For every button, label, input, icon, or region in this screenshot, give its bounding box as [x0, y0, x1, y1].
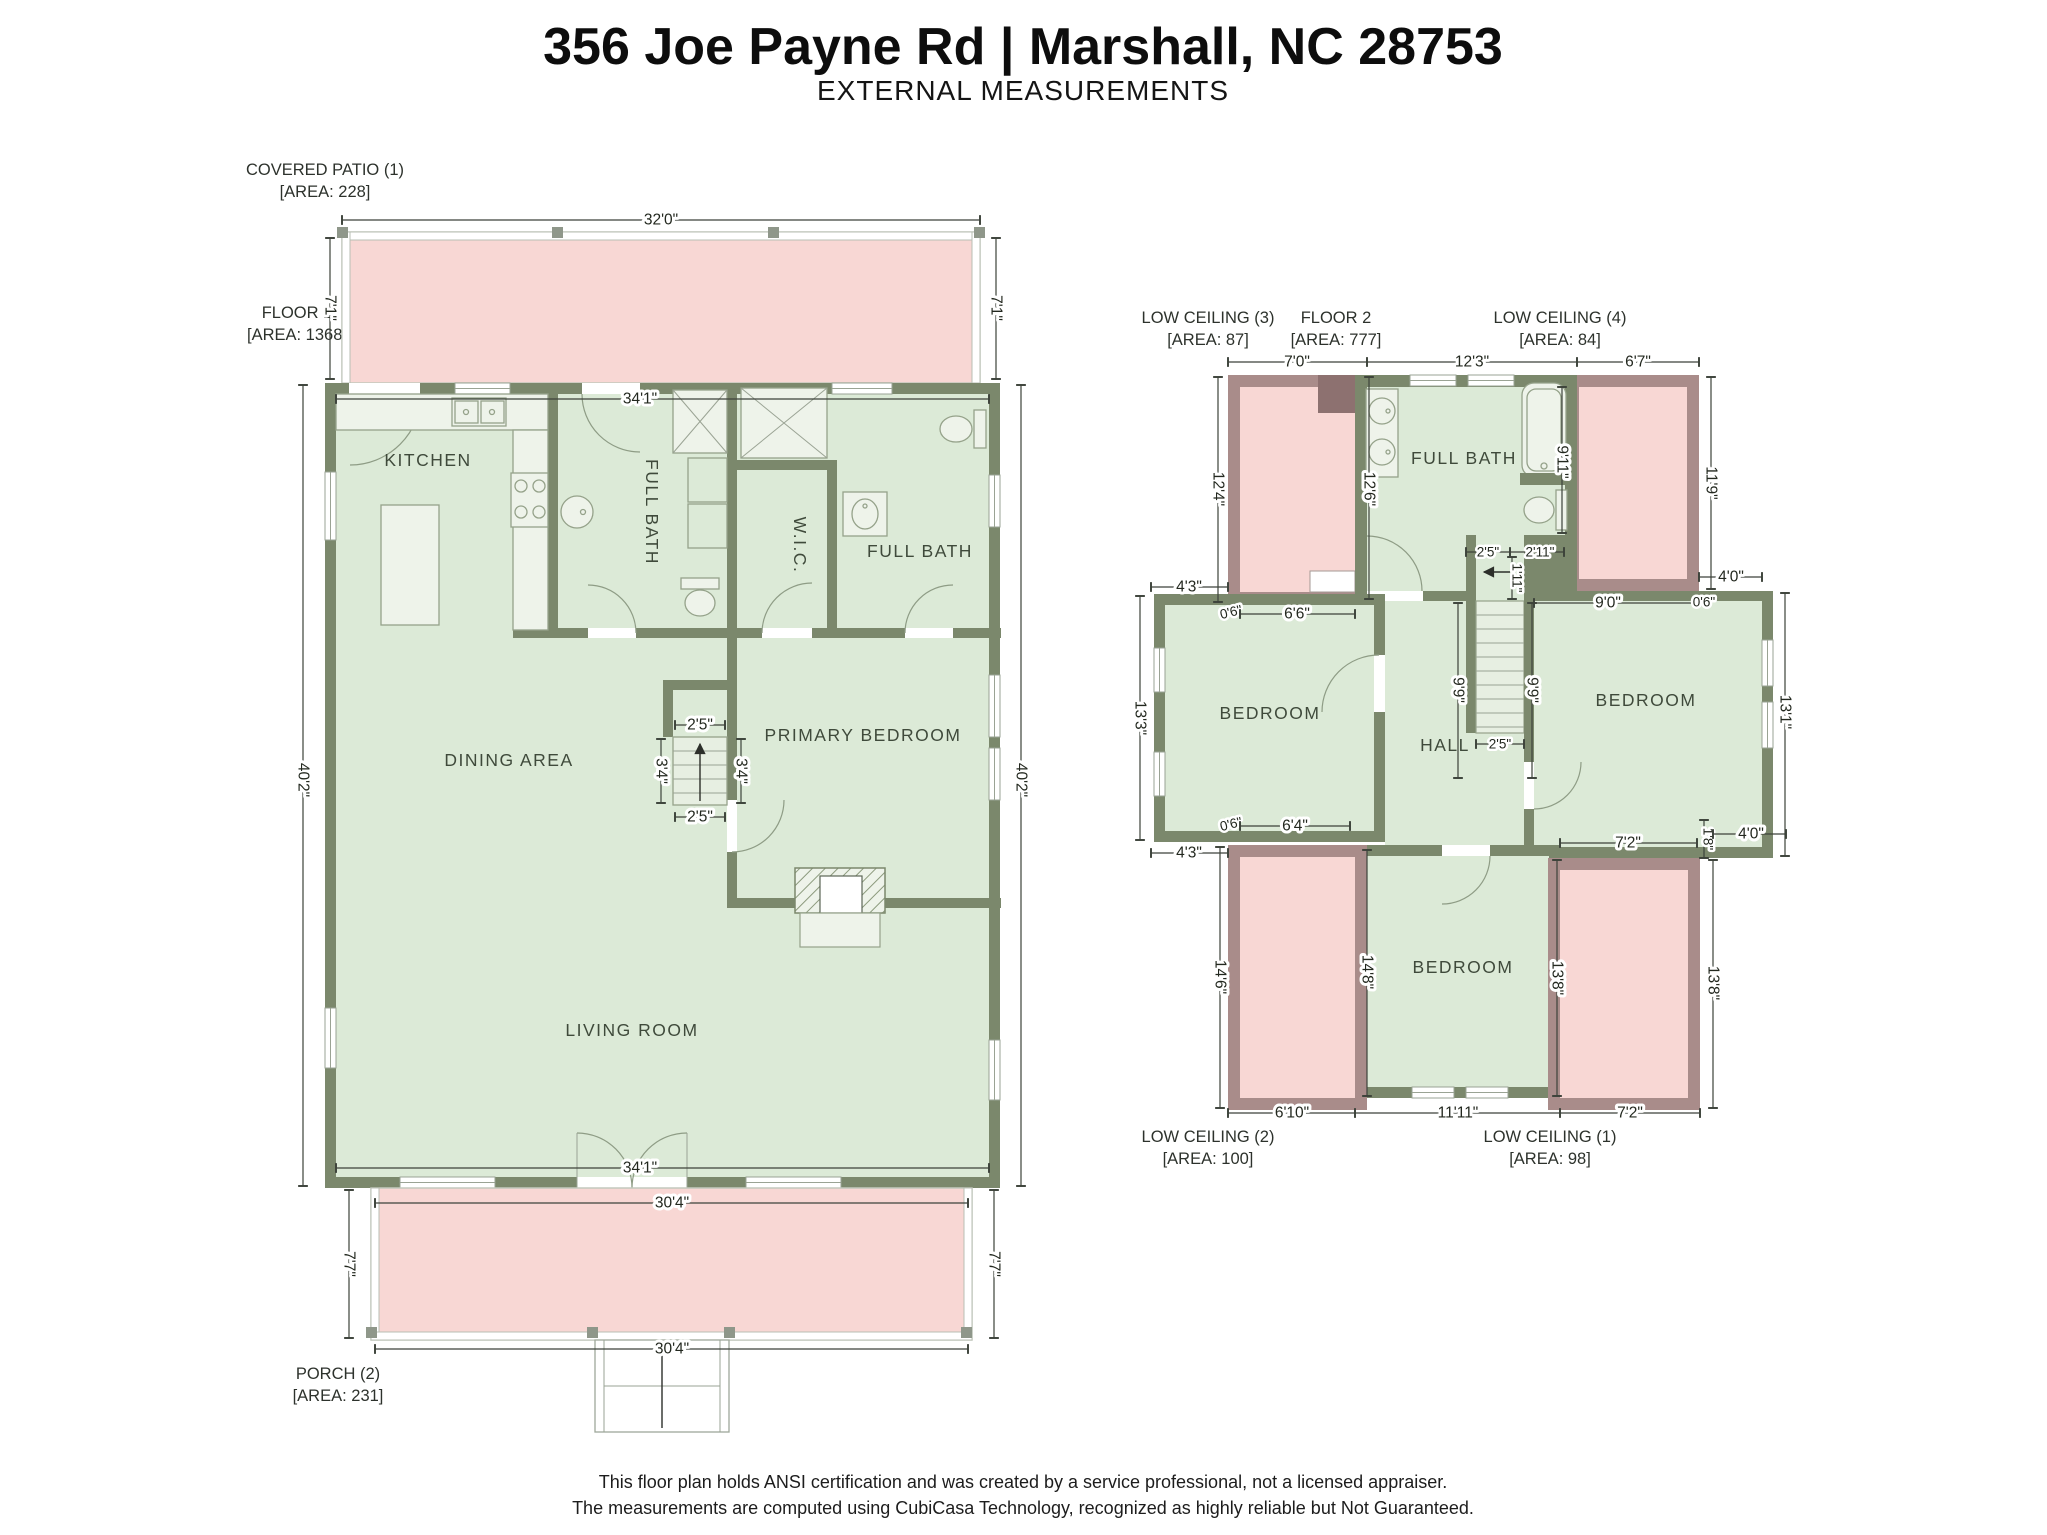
floor2-bedroom-left: BEDROOM: [1154, 594, 1385, 842]
page-subtitle: EXTERNAL MEASUREMENTS: [817, 75, 1229, 106]
svg-text:6'6": 6'6": [1284, 606, 1310, 623]
wall-segment: [663, 690, 673, 737]
room-label-wic: W.I.C.: [790, 517, 810, 574]
wall-segment: [727, 383, 737, 638]
low-ceiling-3-zone: [1228, 375, 1367, 604]
porch-area: [AREA: 231]: [293, 1387, 384, 1405]
page-title: 356 Joe Payne Rd | Marshall, NC 28753: [543, 18, 1503, 76]
covered-patio-area: [337, 227, 985, 383]
floor2-hall: HALL: [1385, 572, 1524, 845]
room-label-full-bath-primary: FULL BATH: [867, 541, 973, 561]
svg-text:1'11": 1'11": [1510, 564, 1525, 593]
footer-line-1: This floor plan holds ANSI certification…: [599, 1472, 1447, 1492]
svg-text:32'0": 32'0": [644, 212, 678, 229]
low-ceiling-1-area: [AREA: 98]: [1509, 1150, 1591, 1168]
room-label-full-bath: FULL BATH: [1411, 448, 1517, 468]
low-ceiling-3-area: [AREA: 87]: [1167, 331, 1249, 349]
svg-text:7'1": 7'1": [322, 295, 339, 321]
floor1-area: [AREA: 1368]: [247, 326, 347, 344]
floor1-plan: COVERED PATIO (1) [AREA: 228] FLOOR 1 [A…: [246, 161, 1030, 1432]
svg-text:7'7": 7'7": [986, 1251, 1003, 1277]
svg-text:2'11": 2'11": [1526, 545, 1555, 560]
svg-text:14'8": 14'8": [1359, 955, 1376, 989]
low-ceiling-1-zone: [1548, 858, 1700, 1110]
svg-text:34'1": 34'1": [623, 1160, 657, 1177]
svg-text:40'2": 40'2": [295, 763, 312, 797]
wall-segment: [663, 680, 737, 690]
room-label-dining: DINING AREA: [444, 750, 573, 770]
room-label-bedroom: BEDROOM: [1220, 703, 1321, 723]
svg-text:2'5": 2'5": [1489, 737, 1512, 752]
wall-segment: [727, 852, 737, 898]
svg-text:2'5": 2'5": [1477, 545, 1500, 560]
svg-text:13'1": 13'1": [1777, 695, 1794, 729]
low-ceiling-2-label: LOW CEILING (2): [1142, 1128, 1275, 1146]
svg-text:4'3": 4'3": [1176, 579, 1202, 596]
svg-text:40'2": 40'2": [1013, 763, 1030, 797]
low-ceiling-4-zone: [1567, 375, 1699, 591]
svg-text:1'8": 1'8": [1701, 828, 1716, 851]
svg-text:11'9": 11'9": [1703, 466, 1720, 499]
svg-text:2'5": 2'5": [687, 809, 713, 826]
porch-label: PORCH (2): [296, 1365, 380, 1383]
low-ceiling-2-zone: [1228, 845, 1367, 1110]
svg-text:13'8": 13'8": [1705, 966, 1722, 1000]
staircase: [673, 737, 727, 805]
room-label-kitchen: KITCHEN: [384, 450, 471, 470]
low-ceiling-2-area: [AREA: 100]: [1163, 1150, 1254, 1168]
wall-segment: [737, 460, 837, 470]
svg-text:4'0": 4'0": [1738, 826, 1764, 843]
low-ceiling-4-area: [AREA: 84]: [1519, 331, 1601, 349]
svg-text:7'1": 7'1": [988, 295, 1005, 321]
svg-text:2'5": 2'5": [687, 717, 713, 734]
svg-text:4'0": 4'0": [1718, 569, 1744, 586]
svg-text:0'6": 0'6": [1693, 595, 1716, 610]
svg-text:12'6": 12'6": [1361, 472, 1378, 506]
low-ceiling-3-label: LOW CEILING (3): [1142, 309, 1275, 327]
svg-text:6'4": 6'4": [1282, 818, 1308, 835]
wall-segment: [548, 383, 558, 638]
svg-text:3'4": 3'4": [653, 758, 670, 784]
low-ceiling-4-label: LOW CEILING (4): [1494, 309, 1627, 327]
svg-text:9'11": 9'11": [1554, 445, 1571, 478]
svg-text:30'4": 30'4": [655, 1195, 689, 1212]
floor2-bedroom-bottom: BEDROOM: [1355, 845, 1560, 1098]
floor2-full-bath: FULL BATH: [1355, 375, 1577, 601]
svg-text:6'7": 6'7": [1625, 354, 1651, 371]
svg-text:11'11": 11'11": [1438, 1105, 1479, 1122]
room-label-hall: HALL: [1420, 735, 1470, 755]
wall-segment: [827, 460, 837, 638]
floor-plan-canvas: 356 Joe Payne Rd | Marshall, NC 28753 EX…: [0, 0, 2047, 1535]
svg-text:9'9": 9'9": [1450, 677, 1467, 703]
svg-text:6'10": 6'10": [1275, 1105, 1309, 1122]
floor-plan-page: 356 Joe Payne Rd | Marshall, NC 28753 EX…: [0, 0, 2047, 1535]
floor2-plan: LOW CEILING (3) [AREA: 87] FLOOR 2 [AREA…: [1132, 309, 1794, 1168]
svg-text:14'6": 14'6": [1212, 960, 1229, 994]
svg-text:7'7": 7'7": [341, 1251, 358, 1277]
low-ceiling-1-label: LOW CEILING (1): [1484, 1128, 1617, 1146]
covered-patio-label: COVERED PATIO (1): [246, 161, 404, 179]
svg-text:4'3": 4'3": [1176, 845, 1202, 862]
svg-text:7'2": 7'2": [1617, 1105, 1643, 1122]
svg-text:13'3": 13'3": [1132, 701, 1149, 735]
svg-text:12'4": 12'4": [1210, 472, 1227, 506]
svg-text:30'4": 30'4": [655, 1341, 689, 1358]
svg-text:12'3": 12'3": [1455, 354, 1489, 371]
svg-text:9'0": 9'0": [1595, 595, 1621, 612]
fireplace-icon: [795, 868, 885, 947]
floor2-label: FLOOR 2: [1301, 309, 1372, 327]
footer-line-2: The measurements are computed using Cubi…: [572, 1498, 1474, 1518]
room-label-full-bath-left: FULL BATH: [642, 459, 662, 565]
floor2-area: [AREA: 777]: [1291, 331, 1382, 349]
svg-text:13'8": 13'8": [1549, 961, 1566, 995]
room-label-bedroom: BEDROOM: [1596, 690, 1697, 710]
svg-text:3'4": 3'4": [733, 758, 750, 784]
room-label-primary-bedroom: PRIMARY BEDROOM: [765, 725, 962, 745]
room-label-living: LIVING ROOM: [565, 1020, 698, 1040]
floor2-bedroom-right: BEDROOM: [1524, 591, 1773, 858]
covered-patio-area: [AREA: 228]: [280, 183, 371, 201]
svg-text:9'9": 9'9": [1524, 677, 1541, 703]
svg-text:7'0": 7'0": [1284, 354, 1310, 371]
svg-text:34'1": 34'1": [623, 391, 657, 408]
floor1-structure: [325, 383, 1001, 1188]
room-label-bedroom: BEDROOM: [1413, 957, 1514, 977]
svg-text:7'2": 7'2": [1615, 835, 1641, 852]
